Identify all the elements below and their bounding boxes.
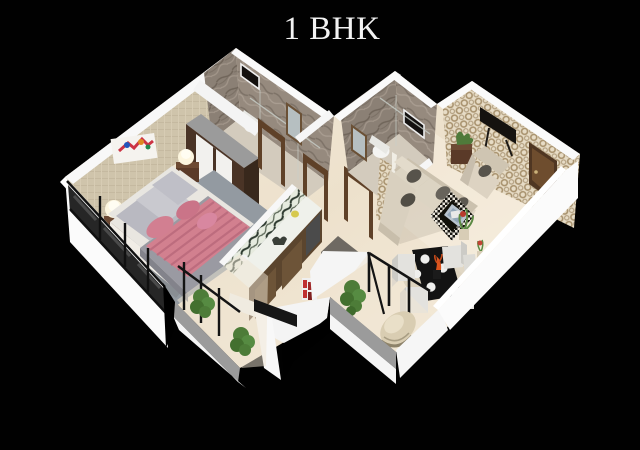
svg-text:1 BHK: 1 BHK bbox=[284, 11, 381, 47]
